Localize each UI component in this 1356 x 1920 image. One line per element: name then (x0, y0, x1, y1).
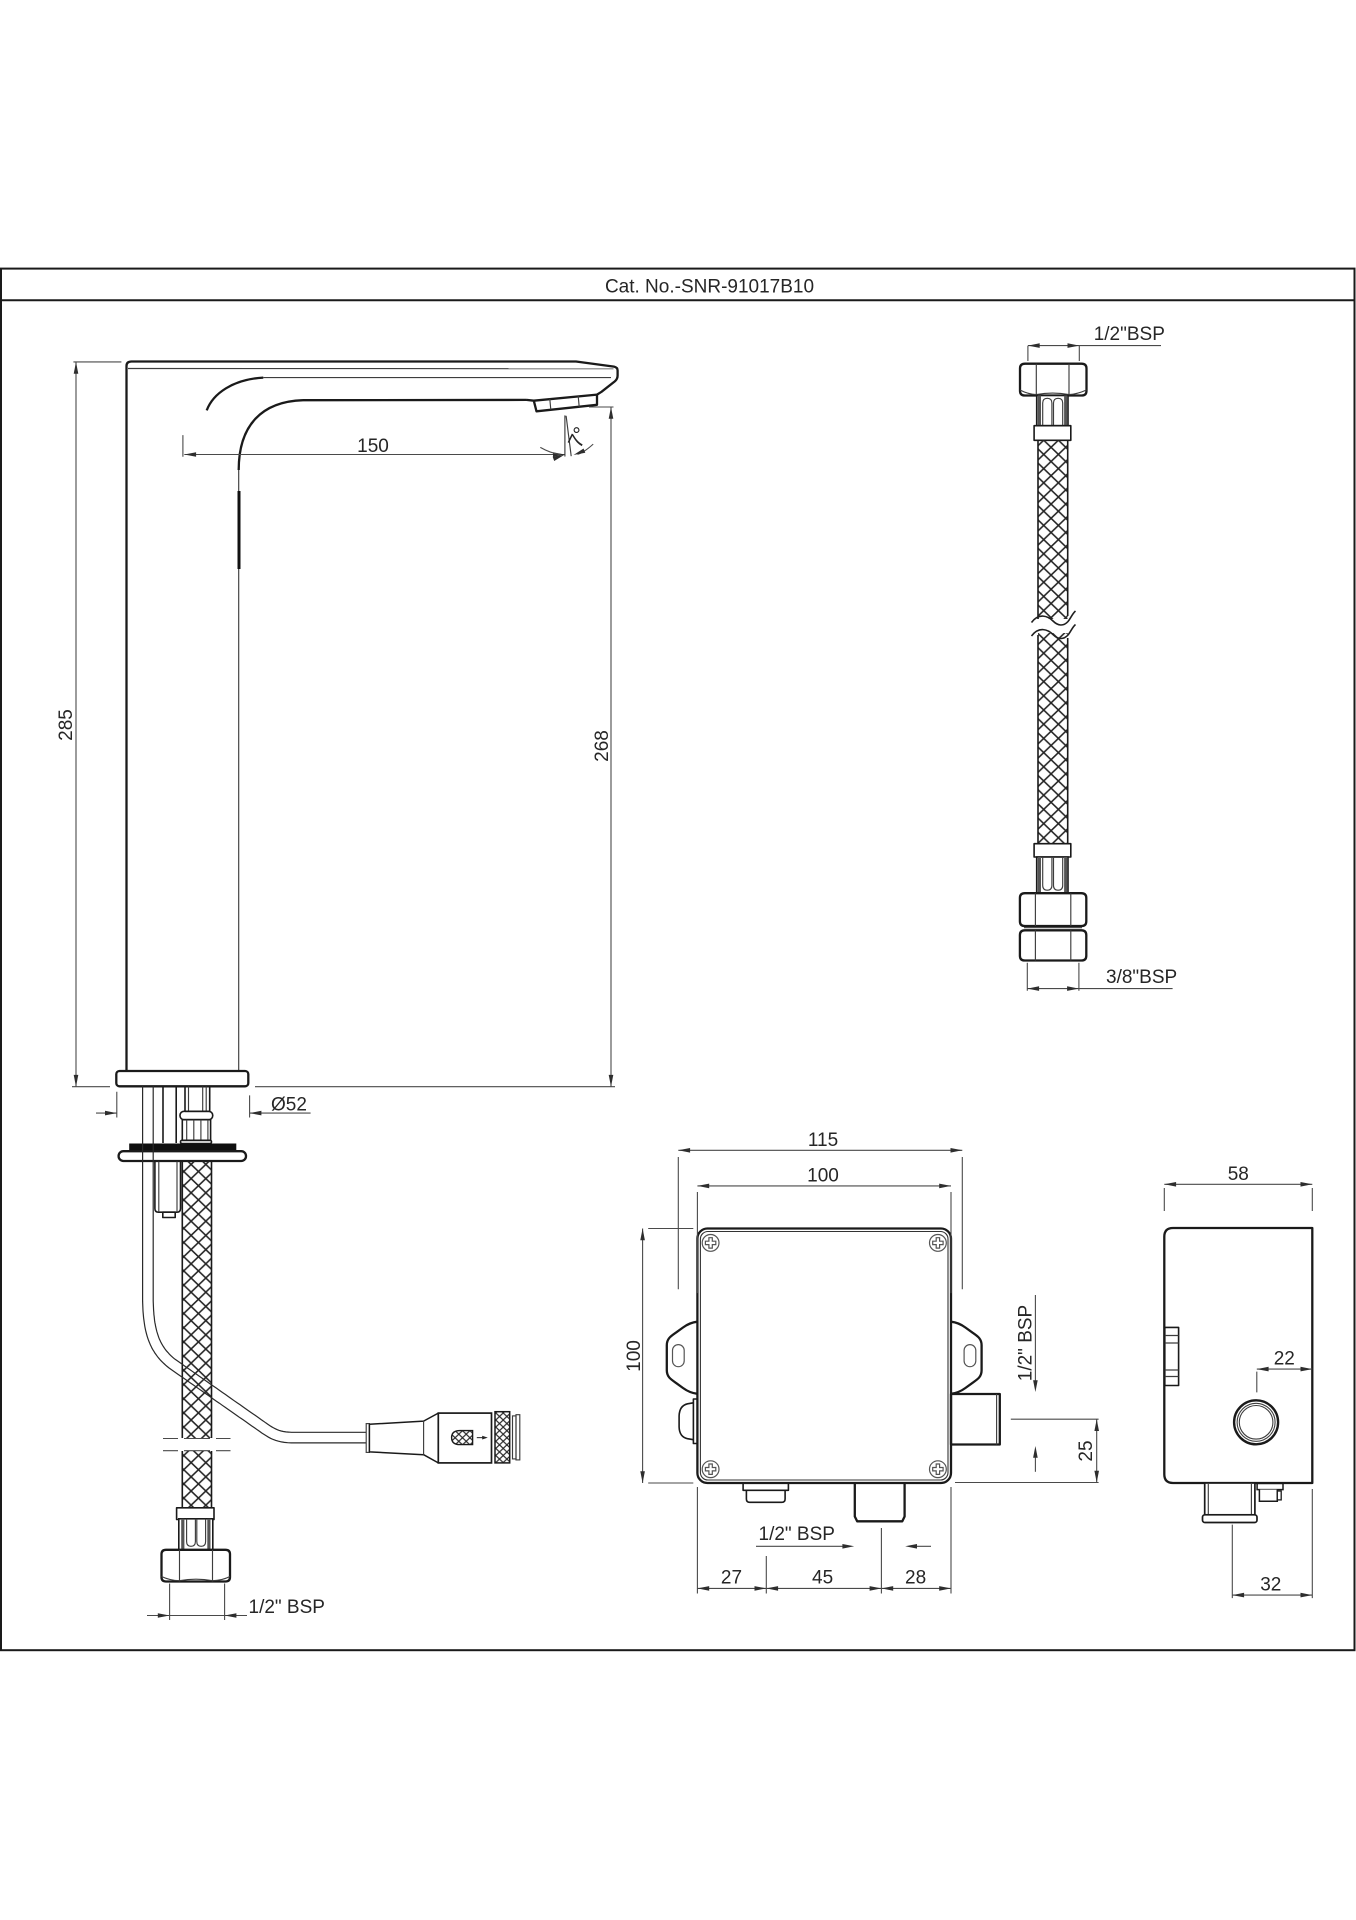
svg-text:28: 28 (905, 1568, 926, 1589)
svg-text:1/2"BSP: 1/2"BSP (1094, 324, 1165, 345)
svg-text:1/2" BSP: 1/2" BSP (1016, 1305, 1037, 1381)
svg-text:Cat. No.-SNR-91017B10: Cat. No.-SNR-91017B10 (605, 277, 814, 298)
svg-text:268: 268 (592, 730, 613, 762)
svg-text:100: 100 (807, 1166, 839, 1187)
svg-text:58: 58 (1228, 1164, 1249, 1185)
svg-text:Ø52: Ø52 (271, 1095, 307, 1116)
svg-text:32: 32 (1260, 1575, 1281, 1596)
svg-text:25: 25 (1076, 1440, 1097, 1461)
svg-text:150: 150 (357, 436, 389, 457)
svg-text:27: 27 (721, 1568, 742, 1589)
svg-text:285: 285 (56, 709, 77, 741)
svg-text:22: 22 (1274, 1349, 1295, 1370)
svg-text:115: 115 (808, 1130, 838, 1151)
svg-text:1/2" BSP: 1/2" BSP (249, 1597, 325, 1618)
svg-text:45: 45 (812, 1568, 833, 1589)
svg-text:100: 100 (624, 1340, 645, 1372)
svg-text:1/2" BSP: 1/2" BSP (759, 1524, 835, 1545)
svg-text:3/8"BSP: 3/8"BSP (1106, 967, 1177, 988)
